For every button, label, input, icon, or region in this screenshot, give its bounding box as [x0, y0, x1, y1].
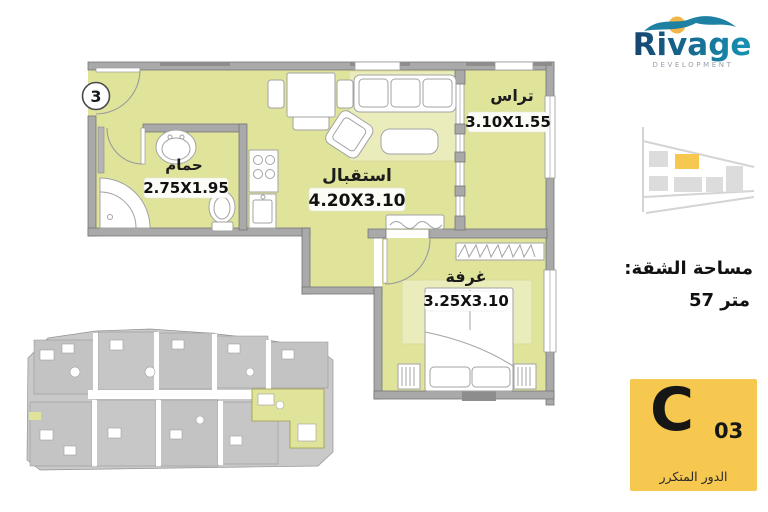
apartment-area-label: مساحة الشقة:: [583, 258, 753, 279]
bedroom-label: غرفة: [445, 267, 486, 286]
reception-label: استقبال: [322, 166, 392, 186]
brochure-page: 3 حمام 2.75X1.95 استقبال 4.20X3.10 تراس …: [0, 0, 768, 512]
rivage-logo: Rivage DEVELOPMENT: [630, 10, 758, 72]
reception-dims: 4.20X3.10: [309, 191, 406, 211]
unit-type-badge: C 03 الدور المتكرر: [630, 379, 757, 491]
bathroom-dims: 2.75X1.95: [143, 179, 229, 197]
coffee-table-icon: [381, 129, 438, 154]
apartment-area: مساحة الشقة: 57 متر: [583, 258, 753, 311]
wardrobe-icon: [456, 243, 544, 260]
tv-console-icon: [386, 215, 444, 229]
unit-number-text: 3: [90, 87, 101, 106]
unit-number-marker: 3: [83, 83, 110, 110]
terrace-label: تراس: [490, 86, 534, 105]
logo-tagline-text: DEVELOPMENT: [653, 61, 734, 69]
bathroom-label: حمام: [165, 156, 203, 174]
rivage-logo-graphic: Rivage DEVELOPMENT: [630, 10, 758, 72]
apartment-area-value: 57 متر: [583, 290, 753, 311]
terrace-dims: 3.10X1.55: [465, 113, 551, 131]
sofa-icon: [354, 75, 456, 112]
mini-map-highlight: [675, 154, 699, 169]
building-floor-plan-thumbnail: [27, 329, 333, 470]
stove-icon: [249, 150, 278, 192]
unit-type-number: 03: [714, 419, 743, 443]
unit-type-letter: C: [650, 377, 694, 443]
bedroom-dims: 3.25X3.10: [423, 292, 509, 310]
kitchen-sink-icon: [249, 194, 276, 228]
location-mini-map: [643, 127, 754, 213]
logo-brand-text: Rivage: [633, 27, 752, 63]
floor-type-label: الدور المتكرر: [630, 469, 757, 484]
